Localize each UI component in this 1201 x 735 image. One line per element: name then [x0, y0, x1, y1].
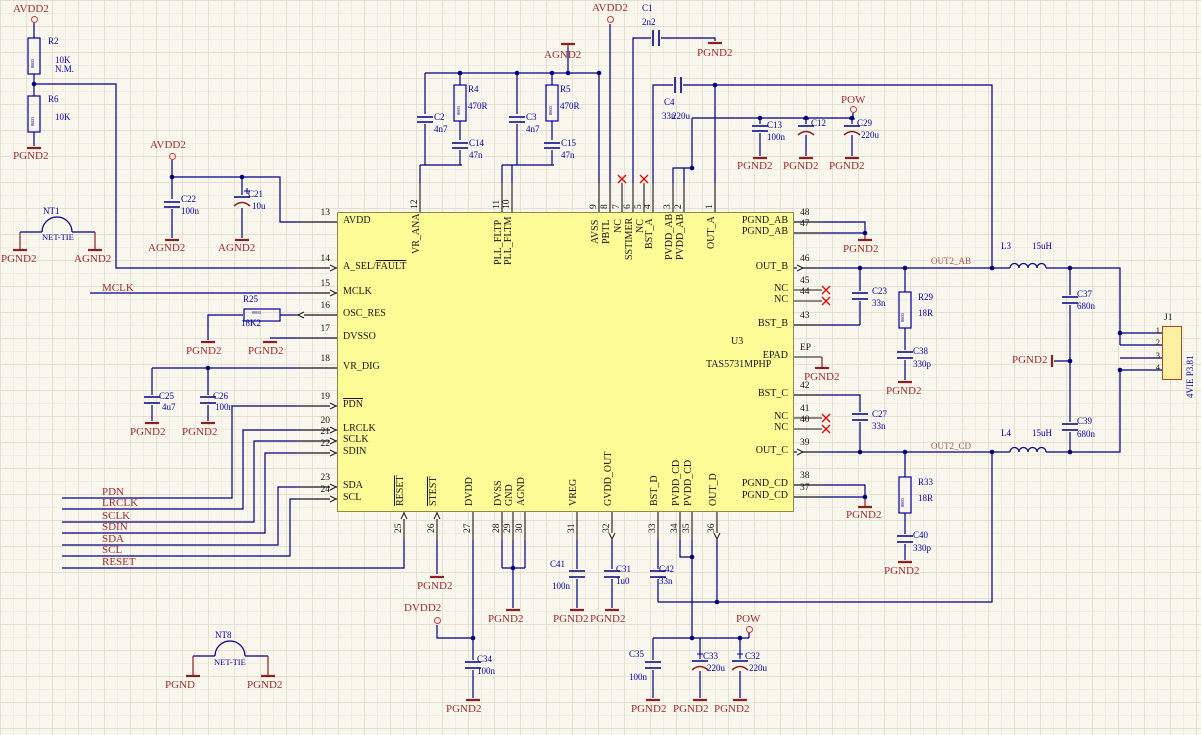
component-ref-C2[interactable]: C2: [434, 113, 445, 122]
ground-port-PGND2[interactable]: PGND2: [590, 614, 625, 625]
inductor-l3: [1010, 264, 1046, 269]
component-value-C31[interactable]: 1u0: [616, 577, 630, 586]
plus-marks: [244, 116, 855, 657]
ground-port-PGND2[interactable]: PGND2: [886, 386, 921, 397]
component-ref-C29[interactable]: C29: [857, 119, 872, 128]
component-ref-R33[interactable]: R33: [918, 478, 933, 487]
pin-13-name: AVDD: [343, 216, 371, 226]
component-ref-C42[interactable]: C42: [659, 565, 674, 574]
power-port-POW[interactable]: POW: [736, 614, 760, 625]
pin-41-name: NC: [658, 412, 788, 422]
pin-12-name: VR_ANA: [412, 214, 422, 255]
ground-port-PGND2[interactable]: PGND2: [553, 614, 588, 625]
component-body-text-R4: 0803: [457, 106, 462, 115]
pin-4-number: 4: [644, 204, 654, 209]
pin-32-name: GVDD_OUT: [604, 452, 614, 506]
component-ref-C31[interactable]: C31: [616, 565, 631, 574]
component-value-C41[interactable]: 100n: [552, 582, 570, 591]
pin-35-name: PVDD_CD: [684, 460, 694, 506]
ground-port-AGND2[interactable]: AGND2: [74, 254, 111, 265]
component-ref-L3[interactable]: L3: [1001, 242, 1011, 251]
ground-port-PGND2[interactable]: PGND2: [248, 346, 283, 357]
pin-29-name: GND: [505, 484, 515, 506]
pin-15-name: MCLK: [343, 287, 372, 297]
pin-13-number: 13: [298, 209, 330, 219]
component-body-text-R25: 0803: [252, 311, 261, 316]
pin-20-name: LRCLK: [343, 424, 376, 434]
net-tie-label[interactable]: NET-TIE: [42, 233, 74, 242]
power-port-circle[interactable]: [850, 106, 857, 113]
pin-7-name: NC: [614, 219, 624, 233]
pin-18-number: 18: [298, 355, 330, 365]
pin-24-name: SCL: [343, 493, 361, 503]
pin-16-number: 16: [298, 302, 330, 312]
net-label-MCLK[interactable]: MCLK: [102, 283, 134, 294]
pin-1-number: 1: [706, 204, 716, 209]
pin-4-name: BST_A: [645, 218, 655, 249]
component-ref-R25[interactable]: R25: [243, 295, 258, 304]
component-ref-C37[interactable]: C37: [1077, 290, 1092, 299]
pin-18-name: VR_DIG: [343, 362, 380, 372]
component-ref-C33[interactable]: C33: [703, 652, 718, 661]
pin-15-number: 15: [298, 280, 330, 290]
pin-48-number: 48: [800, 209, 810, 219]
pin-47-number: 47: [800, 220, 810, 230]
ground-port-PGND2[interactable]: PGND2: [446, 704, 481, 715]
power-port-circle[interactable]: [169, 153, 176, 160]
ground-port-PGND2[interactable]: PGND2: [673, 704, 708, 715]
power-port-AVDD2[interactable]: AVDD2: [150, 140, 186, 151]
ground-port-AGND2[interactable]: AGND2: [544, 50, 581, 61]
component-value-R29[interactable]: 18R: [918, 309, 933, 318]
component-value-C39[interactable]: 680n: [1077, 430, 1095, 439]
component-value-R4[interactable]: 470R: [468, 102, 488, 111]
component-ref-C32[interactable]: C32: [745, 652, 760, 661]
pin-45-number: 45: [800, 277, 810, 287]
component-body-text-R6: 0803: [31, 117, 36, 126]
component-value-L3[interactable]: 15uH: [1032, 242, 1052, 251]
power-port-DVDD2[interactable]: DVDD2: [404, 603, 441, 614]
pin-25-number: 25: [395, 524, 405, 534]
ground-port-PGND2[interactable]: PGND2: [186, 346, 221, 357]
pin-33-number: 33: [649, 524, 659, 534]
pin-EP-number: EP: [800, 344, 811, 354]
ground-port-PGND2[interactable]: PGND2: [130, 427, 165, 438]
pin-1-name: OUT_A: [707, 216, 717, 249]
net-label-LRCLK[interactable]: LRCLK: [102, 498, 138, 509]
pin-23-number: 23: [298, 474, 330, 484]
ground-port-PGND2[interactable]: PGND2: [417, 581, 452, 592]
pin-46-name: OUT_B: [658, 262, 788, 272]
pin-14-name: A_SEL/FAULT: [343, 262, 406, 272]
pin-22-name: SDIN: [343, 447, 366, 457]
pin-28-number: 28: [493, 524, 503, 534]
ground-port-PGND[interactable]: PGND: [165, 680, 195, 691]
net-tie-label[interactable]: NET-TIE: [214, 658, 246, 667]
component-value-C22[interactable]: 100n: [181, 207, 199, 216]
component-ref-C38[interactable]: C38: [913, 347, 928, 356]
component-value-C37[interactable]: 680n: [1077, 302, 1095, 311]
pin-23-name: SDA: [343, 481, 363, 491]
net-label-OUT2_AB[interactable]: OUT2_AB: [931, 257, 971, 266]
pin-27-number: 27: [464, 524, 474, 534]
pin-39-number: 39: [800, 439, 810, 449]
pin-45-name: NC: [658, 284, 788, 294]
power-port-AVDD2[interactable]: AVDD2: [592, 3, 628, 14]
pin-25-name: RESET: [396, 475, 406, 506]
pin-36-name: OUT_D: [709, 473, 719, 506]
component-value-C42[interactable]: 33n: [659, 577, 673, 586]
pin-40-number: 40: [800, 416, 810, 426]
inductor-l4: [1010, 448, 1046, 453]
component-ref-C25[interactable]: C25: [159, 392, 174, 401]
component-value-C34[interactable]: 100n: [477, 667, 495, 676]
component-ref-C34[interactable]: C34: [477, 655, 492, 664]
component-value-C29[interactable]: 220u: [861, 131, 879, 140]
component-body-text-R29: 0803: [901, 313, 906, 322]
component-ref-L4[interactable]: L4: [1001, 429, 1011, 438]
net-tie-ref-NT8[interactable]: NT8: [215, 631, 232, 640]
pin-6-name: SSTIMER: [625, 218, 635, 260]
component-note-C4[interactable]: 220u: [672, 112, 690, 121]
component-value-C15[interactable]: 47n: [561, 151, 575, 160]
component-value-C27[interactable]: 33n: [872, 422, 886, 431]
pin-42-number: 42: [800, 382, 810, 392]
component-value-C13[interactable]: 100n: [767, 133, 785, 142]
wire-net: [20, 23, 1162, 698]
component-ref-C22[interactable]: C22: [181, 195, 196, 204]
capacitor-plates: [144, 30, 1078, 668]
component-ref-R5[interactable]: R5: [560, 85, 571, 94]
power-port-circle[interactable]: [434, 617, 441, 624]
component-ref-C14[interactable]: C14: [469, 139, 484, 148]
component-value-R25[interactable]: 18K2: [241, 319, 261, 328]
ground-port-PGND2[interactable]: PGND2: [783, 161, 818, 172]
pin-38-number: 38: [800, 472, 810, 482]
pin-16-name: OSC_RES: [343, 309, 386, 319]
pin-31-number: 31: [568, 524, 578, 534]
ground-port-PGND2[interactable]: PGND2: [843, 244, 878, 255]
ic-refdes[interactable]: U3: [731, 337, 743, 347]
component-value-C38[interactable]: 330p: [913, 360, 931, 369]
pin-39-name: OUT_C: [658, 446, 788, 456]
pin-8-name: PBTL: [602, 219, 612, 243]
power-port-circle[interactable]: [607, 16, 614, 23]
net-label-RESET[interactable]: RESET: [102, 557, 136, 568]
component-value-C32[interactable]: 220u: [749, 664, 767, 673]
component-ref-C35[interactable]: C35: [629, 650, 644, 659]
pin-37-number: 37: [800, 484, 810, 494]
pin-46-number: 46: [800, 255, 810, 265]
component-value-C14[interactable]: 47n: [469, 151, 483, 160]
pin-19-name: PDN: [343, 400, 363, 410]
component-value-C1[interactable]: 2n2: [642, 18, 656, 27]
component-ref-R6[interactable]: R6: [48, 95, 59, 104]
net-label-OUT2_CD[interactable]: OUT2_CD: [931, 442, 971, 451]
pin-35-number: 35: [683, 524, 693, 534]
component-ref-C4[interactable]: C4: [664, 98, 675, 107]
pin-44-name: NC: [658, 295, 788, 305]
pin-10-name: PLL_FLTM: [504, 217, 514, 266]
component-value-C21[interactable]: 10u: [252, 202, 266, 211]
pin-14-number: 14: [298, 255, 330, 265]
pin-27-name: DVDD: [465, 477, 475, 506]
component-value-C33[interactable]: 220u: [707, 664, 725, 673]
ground-port-PGND2[interactable]: PGND2: [737, 161, 772, 172]
ground-port-AGND2[interactable]: AGND2: [148, 243, 185, 254]
component-value-R6[interactable]: 10K: [55, 113, 71, 122]
component-value-C35[interactable]: 100n: [629, 673, 647, 682]
component-ref-C12[interactable]: C12: [811, 119, 826, 128]
pin-3-name: PVDD_AB: [665, 214, 675, 260]
ground-port-PGND2[interactable]: PGND2: [631, 704, 666, 715]
component-ref-C40[interactable]: C40: [913, 531, 928, 540]
pin-2-number: 2: [675, 204, 685, 209]
pin-26-name: STEST: [429, 477, 439, 506]
component-ref-C15[interactable]: C15: [561, 139, 576, 148]
component-ref-C41[interactable]: C41: [550, 560, 565, 569]
ground-port-PGND2[interactable]: PGND2: [846, 510, 881, 521]
component-value-C23[interactable]: 33n: [872, 299, 886, 308]
power-port-POW[interactable]: POW: [841, 95, 865, 106]
pin-9-name: AVSS: [591, 219, 601, 243]
component-ref-C3[interactable]: C3: [526, 113, 537, 122]
ground-port-PGND2[interactable]: PGND2: [247, 680, 282, 691]
component-ref-C23[interactable]: C23: [872, 287, 887, 296]
component-ref-C13[interactable]: C13: [767, 121, 782, 130]
pin-32-number: 32: [603, 524, 613, 534]
pin-21-name: SCLK: [343, 435, 369, 445]
component-value-C2[interactable]: 4n7: [434, 125, 448, 134]
power-port-circle[interactable]: [31, 16, 38, 23]
component-value-C26[interactable]: 100n: [215, 403, 233, 412]
pin-3-number: 3: [664, 204, 674, 209]
ground-port-PGND2[interactable]: PGND2: [13, 151, 48, 162]
ground-port-PGND2[interactable]: PGND2: [488, 614, 523, 625]
connector-refdes[interactable]: J1: [1164, 314, 1172, 324]
connector-pin-1[interactable]: 1: [1148, 326, 1160, 335]
pin-42-name: BST_C: [658, 389, 788, 399]
pin-43-name: BST_B: [658, 319, 788, 329]
power-port-AVDD2[interactable]: AVDD2: [13, 4, 49, 15]
ground-port-PGND2[interactable]: PGND2: [884, 566, 919, 577]
pin-28-name: DVSS: [494, 480, 504, 506]
pin-2-name: PVDD_AB: [676, 214, 686, 260]
pin-26-number: 26: [428, 524, 438, 534]
pin-10-number: 10: [503, 200, 513, 210]
component-body-text-R5: 0803: [549, 106, 554, 115]
pin-7-number: 7: [613, 204, 623, 209]
pin-24-number: 24: [298, 486, 330, 496]
pin-8-number: 8: [601, 204, 611, 209]
net-label-SCL[interactable]: SCL: [102, 545, 122, 556]
ground-port-PGND2[interactable]: PGND2: [1012, 355, 1047, 366]
ic-part-number[interactable]: TAS5731MPHP: [706, 360, 771, 370]
pin-19-number: 19: [298, 393, 330, 403]
pin-22-number: 22: [298, 440, 330, 450]
ground-port-PGND2[interactable]: PGND2: [829, 161, 864, 172]
component-value-L4[interactable]: 15uH: [1032, 429, 1052, 438]
component-ref-C21[interactable]: C21: [248, 190, 263, 199]
component-value-R5[interactable]: 470R: [560, 102, 580, 111]
net-tie-ref-NT1[interactable]: NT1: [43, 207, 60, 216]
pin-17-number: 17: [298, 325, 330, 335]
component-body-text-R2: 0803: [31, 59, 36, 68]
connector-pin-3[interactable]: 3: [1148, 351, 1160, 360]
ground-port-AGND2[interactable]: AGND2: [218, 243, 255, 254]
pin-44-number: 44: [800, 288, 810, 298]
pin-17-name: DVSSO: [343, 332, 376, 342]
component-ref-R29[interactable]: R29: [918, 293, 933, 302]
component-ref-C39[interactable]: C39: [1077, 417, 1092, 426]
component-ref-R2[interactable]: R2: [48, 37, 59, 46]
pin-30-name: AGND: [517, 477, 527, 506]
pin-34-name: PVDD_CD: [672, 460, 682, 506]
pin-21-number: 21: [298, 428, 330, 438]
pin-20-number: 20: [298, 417, 330, 427]
pin-36-number: 36: [708, 524, 718, 534]
pin-34-number: 34: [671, 524, 681, 534]
pin-31-name: VREG: [569, 479, 579, 506]
pin-41-number: 41: [800, 405, 810, 415]
ground-port-PGND2[interactable]: PGND2: [697, 48, 732, 59]
component-ref-C26[interactable]: C26: [213, 392, 228, 401]
component-ref-C27[interactable]: C27: [872, 410, 887, 419]
component-value-C3[interactable]: 4n7: [526, 125, 540, 134]
component-ref-R4[interactable]: R4: [468, 85, 479, 94]
connector-pin-4[interactable]: 4: [1148, 363, 1160, 372]
pin-29-number: 29: [504, 524, 514, 534]
net-label-SDIN[interactable]: SDIN: [102, 522, 128, 533]
pin-40-name: NC: [658, 423, 788, 433]
connector-type-label[interactable]: 4VIE P3.81: [1186, 356, 1195, 399]
component-value-C40[interactable]: 330p: [913, 544, 931, 553]
pin-33-name: BST_D: [650, 475, 660, 506]
power-port-circle[interactable]: [746, 626, 753, 633]
ground-port-PGND2[interactable]: PGND2: [182, 427, 217, 438]
connector-pin-2[interactable]: 2: [1148, 338, 1160, 347]
ground-port-PGND2[interactable]: PGND2: [714, 704, 749, 715]
component-body-text-R33: 0803: [901, 498, 906, 507]
schematic-sheet: AVDD2AVDD2AVDD2POWPOWDVDD2PGND2AGND2AGND…: [0, 0, 1201, 735]
pin-6-number: 6: [624, 204, 634, 209]
pin-9-number: 9: [590, 204, 600, 209]
component-ref-C1[interactable]: C1: [642, 4, 653, 13]
pin-12-number: 12: [411, 200, 421, 210]
ground-port-PGND2[interactable]: PGND2: [1, 254, 36, 265]
component-note-R2[interactable]: N.M.: [55, 65, 74, 74]
component-value-C25[interactable]: 4u7: [162, 403, 176, 412]
component-value-R33[interactable]: 18R: [918, 494, 933, 503]
pin-30-number: 30: [516, 524, 526, 534]
pin-43-number: 43: [800, 312, 810, 322]
